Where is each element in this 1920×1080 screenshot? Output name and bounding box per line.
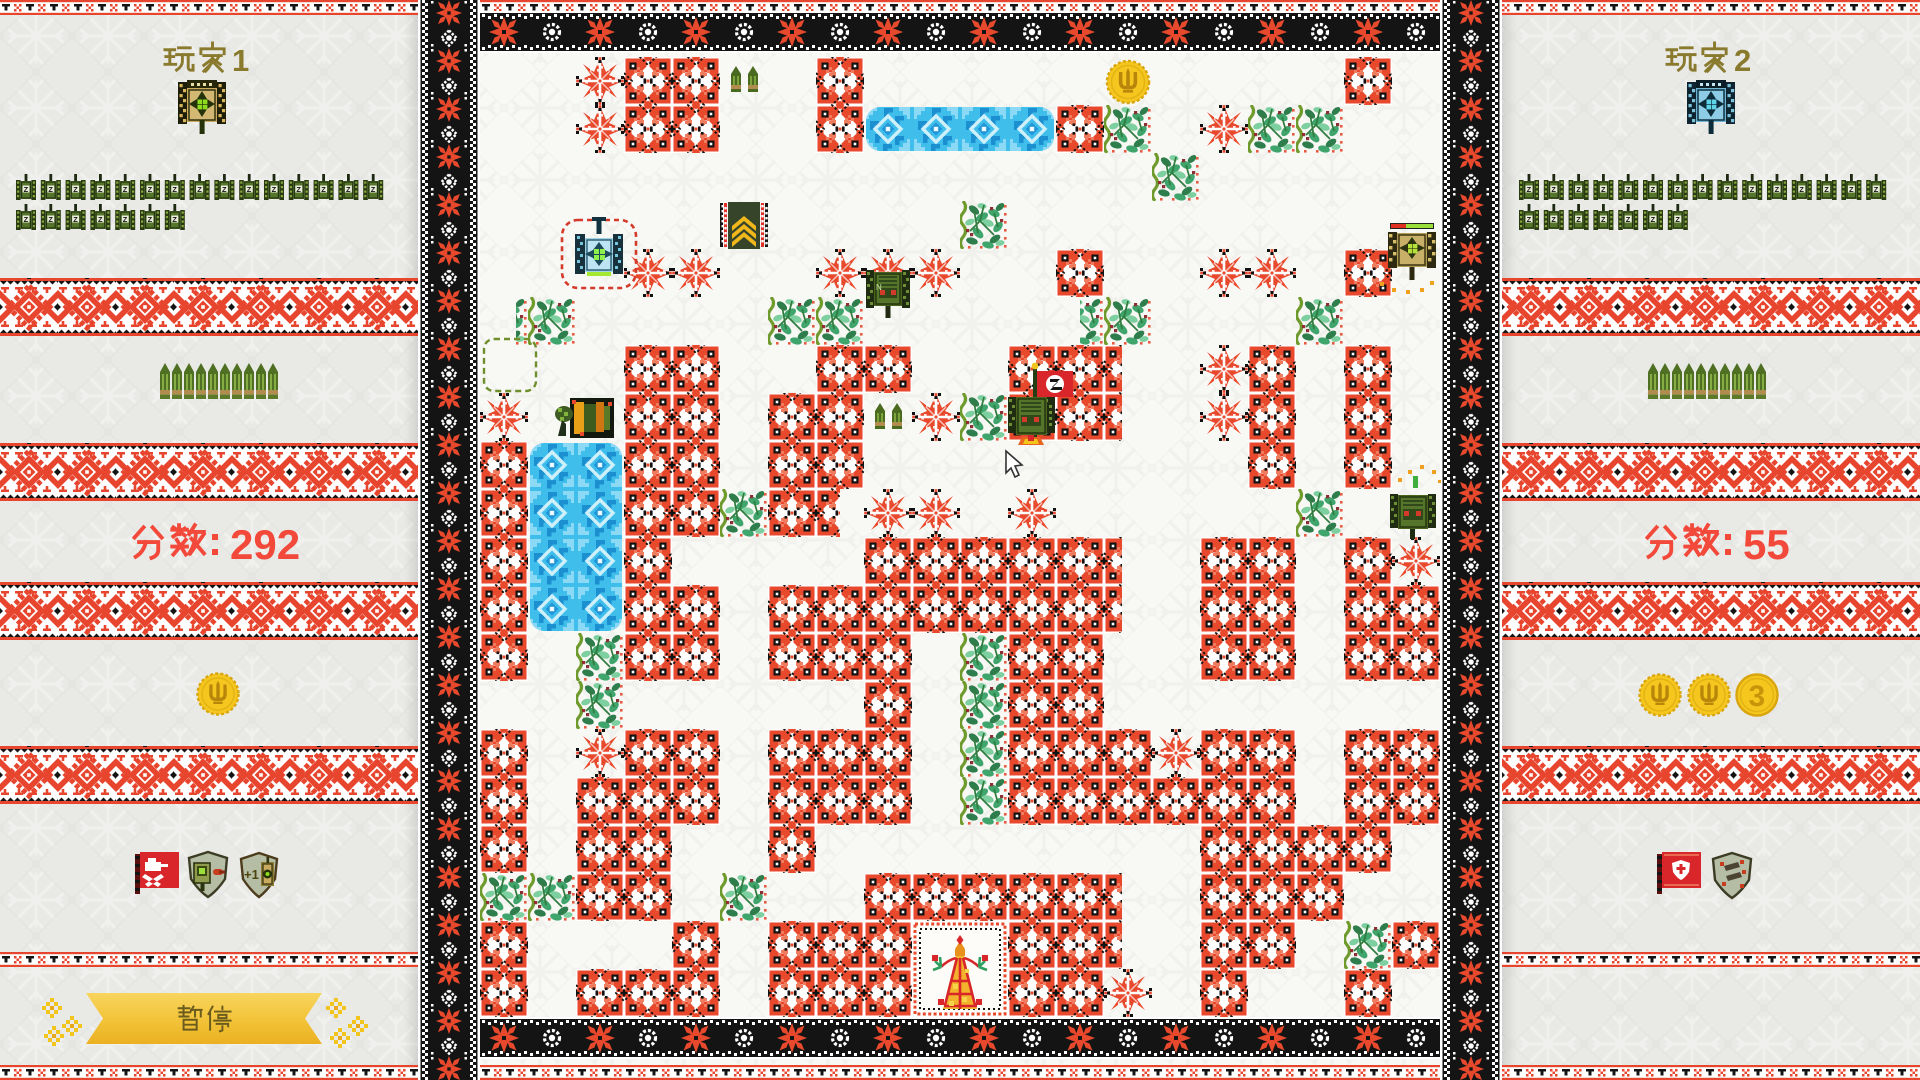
svg-text:+1: +1 xyxy=(244,867,259,882)
svg-text:1: 1 xyxy=(232,43,249,78)
svg-text:N: N xyxy=(876,283,882,292)
svg-text:3: 3 xyxy=(1749,680,1766,713)
svg-text:2: 2 xyxy=(1734,43,1751,78)
svg-text:55: 55 xyxy=(1743,521,1790,568)
svg-text:292: 292 xyxy=(230,521,300,568)
